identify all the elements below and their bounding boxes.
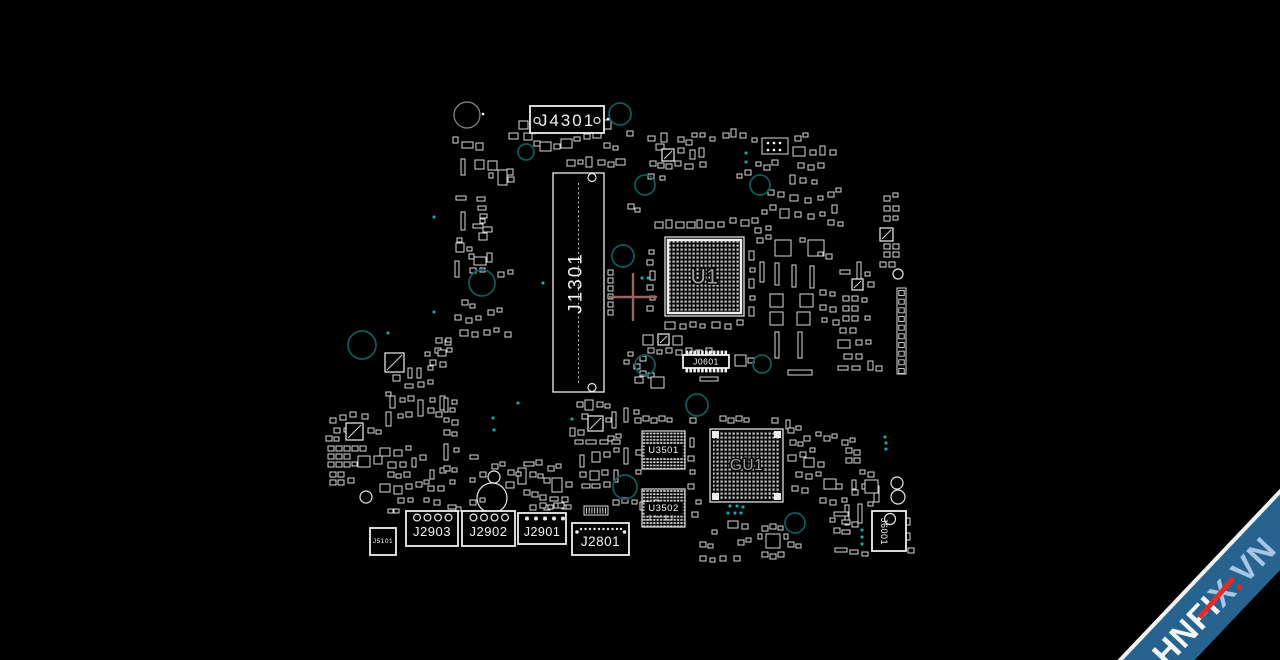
connector-pin-dot — [561, 517, 565, 521]
component-outline — [836, 188, 841, 192]
component-outline — [328, 462, 334, 467]
component-outline — [728, 418, 734, 423]
component-outline — [810, 266, 814, 288]
component-outline — [460, 330, 468, 336]
component-outline — [680, 324, 686, 329]
component-label-J4301: J4301 — [539, 111, 595, 130]
drill-hole-white — [360, 491, 372, 503]
component-outline — [806, 474, 812, 479]
component-outline — [830, 500, 836, 505]
connector-pin-dot — [580, 528, 582, 530]
component-outline — [778, 552, 784, 557]
component-outline — [857, 262, 861, 280]
component-outline — [678, 148, 684, 153]
component-outline — [330, 472, 336, 477]
via-white — [773, 142, 776, 145]
connector-pin-dot — [620, 528, 622, 530]
component-outline — [842, 440, 848, 445]
component-outline — [805, 198, 811, 203]
component-outline — [580, 455, 584, 467]
component-outline — [790, 440, 796, 445]
via-white — [767, 142, 770, 145]
component-outline — [418, 382, 424, 387]
component-outline — [492, 464, 498, 469]
via-teal — [745, 161, 748, 164]
component-outline — [826, 254, 832, 259]
component-outline — [386, 392, 391, 396]
drill-hole-teal — [753, 355, 771, 373]
via-teal — [647, 277, 650, 280]
component-outline — [352, 462, 357, 466]
component-label-J6001: J6001 — [879, 518, 889, 545]
component-outline — [742, 524, 748, 529]
component-outline — [788, 542, 794, 547]
component-outline — [580, 472, 586, 477]
component-J6001[interactable]: J6001 — [872, 511, 906, 551]
header-tooth — [721, 368, 724, 372]
component-outline — [524, 133, 532, 140]
component-outline — [666, 164, 672, 169]
component-outline — [818, 252, 823, 256]
component-outline — [400, 398, 405, 402]
component-outline — [612, 412, 616, 428]
component-outline — [730, 218, 736, 223]
component-outline — [567, 160, 575, 166]
component-J4301[interactable]: J4301 — [530, 106, 604, 133]
component-outline — [790, 195, 798, 201]
component-outline — [700, 556, 706, 561]
component-outline — [396, 474, 401, 478]
component-outline — [430, 470, 434, 479]
component-outline — [762, 138, 788, 154]
component-outline — [494, 328, 499, 332]
drill-hole-teal — [469, 270, 495, 296]
component-outline — [338, 472, 344, 477]
component-outline — [509, 133, 518, 139]
component-outline — [840, 270, 850, 274]
component-outline — [757, 238, 763, 243]
component-outline — [478, 206, 486, 210]
component-outline — [686, 140, 692, 145]
component-U3502[interactable]: U3502 — [642, 489, 685, 527]
component-outline — [676, 222, 684, 228]
component-outline — [710, 137, 715, 141]
component-outline — [830, 150, 836, 155]
component-outline — [479, 233, 487, 240]
component-outline — [450, 408, 455, 412]
header-tooth — [705, 351, 708, 355]
header-tooth — [717, 351, 720, 355]
component-label-U3501: U3501 — [648, 445, 679, 456]
connector-pin-dot — [616, 528, 618, 530]
component-label-J1301: J1301 — [566, 252, 587, 314]
connector-pin-dot — [575, 530, 579, 534]
component-outline — [843, 296, 849, 301]
component-outline — [488, 310, 494, 315]
connector-pin-dot — [593, 528, 595, 530]
component-outline — [374, 456, 382, 464]
component-outline — [865, 316, 870, 320]
component-outline — [530, 505, 536, 510]
component-outline — [484, 330, 490, 335]
component-outline — [796, 544, 801, 548]
header-tooth — [689, 368, 692, 372]
via-white — [607, 118, 610, 121]
component-outline — [561, 139, 572, 148]
component-outline — [475, 160, 484, 169]
component-outline — [344, 454, 350, 459]
component-outline — [893, 216, 898, 220]
component-outline — [790, 175, 795, 184]
component-outline — [362, 414, 368, 419]
component-outline — [893, 206, 899, 211]
component-outline — [430, 360, 436, 365]
component-outline — [667, 418, 672, 422]
component-outline — [712, 322, 720, 328]
component-outline — [788, 428, 794, 433]
component-outline — [749, 307, 754, 316]
component-label-J2903: J2903 — [413, 524, 451, 539]
component-outline — [788, 455, 796, 461]
connector-pin-dot — [584, 528, 586, 530]
component-outline — [328, 446, 334, 451]
component-outline — [842, 520, 850, 524]
component-outline — [858, 504, 862, 523]
component-outline — [538, 474, 543, 478]
header-tooth — [697, 351, 700, 355]
component-outline — [804, 458, 814, 467]
component-outline — [584, 134, 590, 139]
component-outline — [893, 252, 899, 257]
component-outline — [524, 462, 534, 466]
bga-corner-mark — [712, 493, 719, 500]
component-outline — [868, 361, 873, 370]
component-outline — [700, 162, 706, 167]
component-outline — [865, 480, 878, 493]
component-outline — [434, 500, 440, 505]
component-outline — [558, 503, 564, 508]
component-outline — [758, 534, 762, 539]
via-teal — [641, 277, 644, 280]
component-outline — [602, 470, 608, 475]
component-outline — [476, 143, 483, 150]
component-outline — [884, 196, 890, 201]
component-outline — [404, 472, 410, 477]
component-outline — [428, 366, 433, 370]
component-outline — [480, 214, 487, 218]
component-outline — [880, 262, 886, 267]
component-label-J2901: J2901 — [524, 525, 561, 539]
component-outline — [764, 165, 770, 170]
drill-hole-teal — [785, 513, 805, 533]
component-outline — [796, 472, 802, 477]
component-outline — [820, 212, 825, 216]
component-label-J2801: J2801 — [581, 534, 620, 549]
component-outline — [582, 414, 588, 419]
component-outline — [838, 222, 843, 226]
via-teal — [861, 543, 864, 546]
component-outline — [685, 164, 693, 169]
connector-pin-dot — [525, 517, 529, 521]
component-outline — [908, 548, 914, 553]
component-outline — [687, 222, 695, 228]
component-outline — [350, 412, 356, 417]
component-outline — [822, 318, 827, 322]
component-outline — [659, 416, 665, 421]
component-outline — [408, 368, 412, 378]
component-outline — [548, 505, 553, 509]
component-outline — [760, 262, 764, 282]
component-outline — [330, 480, 336, 485]
connector-pin-dot — [607, 528, 609, 530]
component-outline — [394, 509, 399, 513]
component-outline — [470, 304, 475, 308]
component-outline — [651, 418, 657, 423]
component-outline — [843, 316, 849, 321]
component-outline — [850, 438, 855, 442]
component-outline — [800, 294, 813, 307]
component-outline — [360, 446, 366, 451]
component-outline — [461, 159, 465, 175]
component-outline — [650, 161, 656, 166]
component-outline — [804, 436, 810, 441]
component-outline — [326, 436, 332, 441]
drill-hole-teal — [613, 475, 637, 499]
component-outline — [635, 208, 640, 212]
via-teal — [745, 152, 748, 155]
header-tooth — [701, 368, 704, 372]
component-outline — [556, 464, 561, 468]
component-outline — [592, 484, 600, 488]
component-outline — [436, 412, 442, 417]
component-label-J2902: J2902 — [470, 524, 508, 539]
component-outline — [775, 263, 779, 285]
component-outline — [452, 432, 457, 436]
component-GU1[interactable]: GU1 — [710, 429, 783, 502]
component-outline — [398, 498, 404, 503]
component-outline — [643, 416, 649, 421]
component-outline — [834, 512, 848, 516]
component-outline — [406, 484, 412, 489]
component-outline — [470, 478, 475, 482]
component-outline — [428, 486, 434, 491]
component-outline — [700, 324, 705, 328]
component-outline — [830, 307, 836, 312]
component-outline — [636, 470, 641, 474]
component-outline — [605, 404, 610, 408]
component-outline — [798, 442, 803, 446]
component-outline — [452, 420, 458, 425]
via-teal — [861, 529, 864, 532]
component-outline — [838, 340, 850, 348]
component-outline — [418, 400, 423, 416]
component-outline — [690, 470, 695, 474]
component-outline — [424, 498, 429, 502]
drill-hole-white — [891, 477, 903, 489]
component-J2901[interactable]: J2901 — [518, 513, 566, 544]
component-J0601[interactable]: J0601 — [683, 351, 729, 373]
component-outline — [540, 142, 551, 151]
component-J2801[interactable]: J2801 — [572, 523, 629, 555]
via-teal — [433, 311, 436, 314]
component-outline — [453, 137, 458, 143]
component-outline — [772, 418, 778, 423]
component-outline — [430, 398, 435, 402]
component-outline — [766, 226, 771, 230]
component-outline — [708, 544, 713, 548]
component-outline — [673, 336, 682, 345]
component-outline — [700, 377, 718, 381]
component-outline — [856, 340, 862, 345]
component-outline — [516, 472, 521, 476]
component-outline — [816, 432, 821, 436]
component-outline — [532, 492, 538, 497]
component-outline — [444, 398, 448, 412]
component-outline — [466, 318, 472, 323]
drill-hole-teal — [612, 245, 634, 267]
component-outline — [762, 552, 768, 557]
component-outline — [472, 332, 478, 337]
connector-pin-dot — [598, 528, 600, 530]
component-outline — [497, 308, 502, 312]
component-outline — [577, 402, 583, 407]
component-outline — [700, 133, 705, 137]
component-outline — [647, 260, 653, 265]
component-J5101[interactable]: J5101 — [370, 528, 396, 555]
component-outline — [330, 418, 336, 423]
component-outline — [876, 366, 882, 371]
component-outline — [507, 169, 513, 175]
component-outline — [762, 210, 767, 214]
component-outline — [554, 144, 560, 149]
via-teal — [884, 436, 887, 439]
component-outline — [578, 430, 584, 435]
component-outline — [376, 430, 381, 434]
component-outline — [812, 180, 817, 184]
component-outline — [456, 196, 466, 200]
component-J1301[interactable]: J1301 — [553, 173, 604, 392]
header-tooth — [713, 351, 716, 355]
component-U3501[interactable]: U3501 — [642, 431, 685, 469]
component-outline — [648, 348, 654, 353]
component-outline — [792, 265, 796, 287]
component-outline — [770, 312, 783, 325]
component-outline — [570, 428, 575, 436]
component-outline — [850, 328, 856, 333]
component-outline — [820, 498, 826, 503]
component-outline — [438, 486, 444, 491]
component-U1[interactable]: U1 — [665, 237, 744, 316]
component-outline — [604, 143, 610, 148]
component-outline — [636, 450, 642, 455]
component-outline — [830, 292, 835, 296]
component-outline — [893, 244, 899, 249]
component-outline — [500, 462, 505, 466]
component-outline — [462, 300, 468, 305]
component-outline — [843, 306, 849, 311]
component-outline — [737, 320, 743, 325]
component-outline — [436, 338, 442, 343]
component-outline — [808, 165, 814, 170]
drill-hole-teal — [348, 331, 376, 359]
component-outline — [744, 418, 749, 422]
component-outline — [842, 498, 847, 502]
component-outline — [562, 497, 568, 502]
component-outline — [830, 518, 835, 522]
component-outline — [775, 240, 791, 256]
component-outline — [420, 455, 426, 460]
component-outline — [635, 418, 641, 423]
component-outline — [854, 450, 860, 455]
bga-corner-mark — [712, 431, 719, 438]
component-outline — [604, 482, 610, 487]
component-J2902[interactable]: J2902 — [462, 511, 515, 546]
component-outline — [592, 452, 600, 462]
component-outline — [675, 161, 681, 166]
via-teal — [492, 417, 495, 420]
component-outline — [865, 272, 870, 276]
component-outline — [400, 462, 406, 467]
component-outline — [608, 286, 613, 291]
header-tooth — [697, 368, 700, 372]
component-outline — [866, 340, 871, 344]
component-outline — [850, 550, 858, 554]
component-outline — [889, 262, 895, 267]
component-outline — [574, 137, 580, 141]
via-teal — [736, 505, 739, 508]
component-outline — [425, 352, 430, 356]
header-tooth — [705, 368, 708, 372]
component-outline — [334, 428, 340, 433]
component-outline — [488, 161, 497, 170]
component-outline — [795, 136, 801, 141]
component-outline — [614, 448, 619, 452]
board-svg: J4301J1301U1J0601U3501U3502GU1J2903J2902… — [0, 0, 1280, 660]
header-tooth — [725, 351, 728, 355]
component-outline — [582, 484, 590, 488]
component-outline — [750, 296, 755, 300]
component-outline — [598, 160, 605, 165]
component-outline — [624, 408, 628, 422]
component-outline — [590, 471, 599, 480]
component-outline — [797, 312, 810, 325]
drill-hole-teal — [609, 103, 631, 125]
component-outline — [810, 448, 815, 452]
component-outline — [657, 350, 662, 354]
drill-hole-white — [488, 471, 500, 483]
component-outline — [852, 366, 860, 370]
component-label-U3502: U3502 — [648, 503, 679, 514]
component-outline — [477, 197, 485, 201]
header-tooth — [717, 368, 720, 372]
via-white — [482, 113, 485, 116]
component-outline — [860, 470, 865, 474]
component-outline — [838, 366, 848, 370]
component-outline — [736, 416, 742, 421]
component-outline — [666, 220, 672, 228]
component-outline — [428, 380, 433, 384]
component-outline — [440, 362, 446, 367]
component-outline — [752, 218, 758, 223]
component-outline — [810, 150, 816, 155]
component-outline — [634, 410, 639, 414]
component-outline — [795, 212, 801, 217]
component-outline — [756, 162, 761, 166]
component-outline — [616, 159, 625, 165]
component-outline — [666, 348, 672, 353]
drill-hole-teal — [635, 175, 655, 195]
component-J2903[interactable]: J2903 — [406, 511, 458, 546]
